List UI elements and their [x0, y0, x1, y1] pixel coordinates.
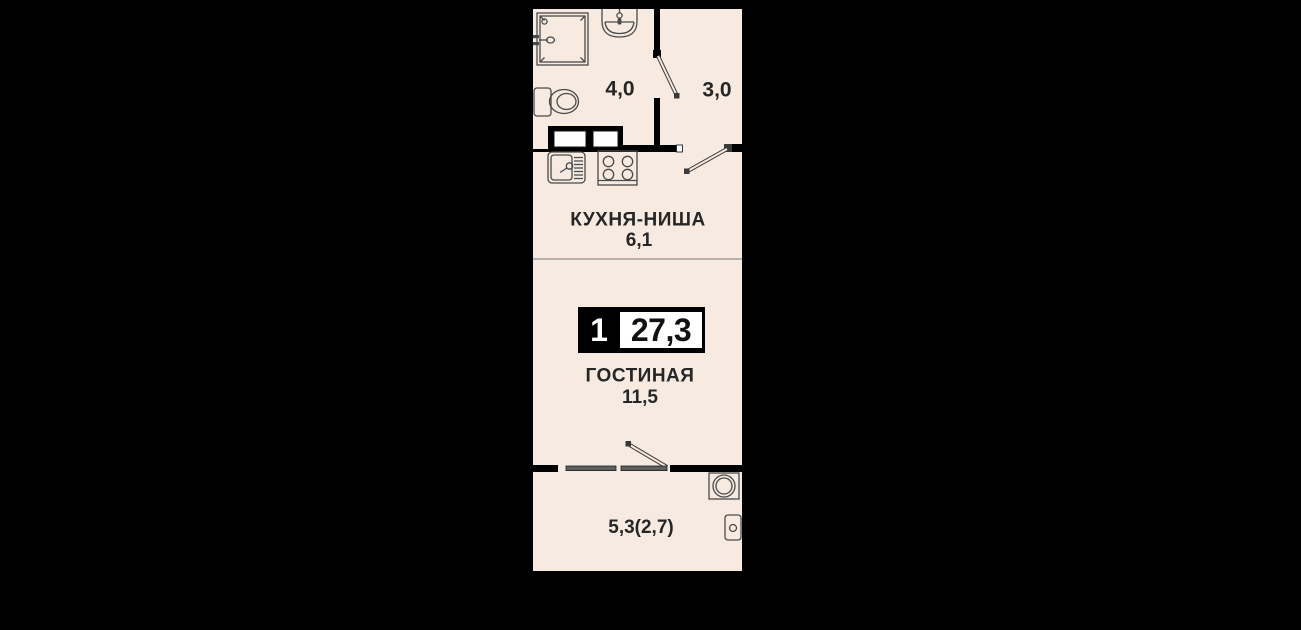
- badge-rooms-count: 1: [590, 312, 608, 348]
- kitchen-area-label: 6,1: [626, 230, 653, 251]
- kitchen-name-label: КУХНЯ-НИША: [570, 210, 705, 231]
- living-area-label: 11,5: [622, 387, 658, 408]
- wall-bathroom-lower: [654, 98, 660, 152]
- window-frame-bar: [566, 466, 616, 471]
- badge-total-area: 27,3: [631, 312, 691, 348]
- duct-shaft-icon: [593, 131, 618, 147]
- living-name-label: ГОСТИНАЯ: [586, 366, 695, 387]
- duct-shaft-icon: [554, 131, 586, 147]
- bathroom-area-label: 4,0: [605, 78, 634, 101]
- wall-end-marker: [677, 145, 683, 152]
- balcony-area-label: 5,3(2,7): [608, 517, 673, 538]
- floor-plan: 1 27,3 4,0 3,0 КУХНЯ-НИША 6,1 ГОСТИНАЯ 1…: [0, 0, 1301, 630]
- hallway-area-label: 3,0: [702, 79, 731, 102]
- window-frame-bar: [621, 466, 667, 471]
- floor-plan-canvas: 1 27,3 4,0 3,0 КУХНЯ-НИША 6,1 ГОСТИНАЯ 1…: [0, 0, 1301, 630]
- duct-block: [548, 126, 623, 152]
- info-badge: 1 27,3: [578, 307, 705, 353]
- wall-bathroom-upper: [654, 9, 660, 53]
